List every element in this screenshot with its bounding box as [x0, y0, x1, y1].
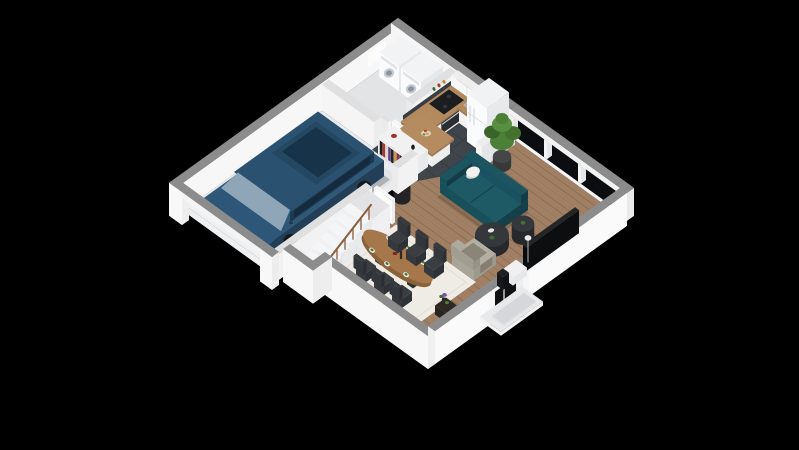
- record-spine: [380, 141, 383, 156]
- table-centerpiece: [393, 252, 398, 255]
- garage-door-leaf-right-face: [392, 198, 395, 224]
- dining-chair-back-right-face: [400, 287, 403, 301]
- fruit-red: [424, 130, 427, 132]
- sideboard-bowl: [391, 134, 397, 138]
- wall-corner-right-right-face: [627, 188, 634, 221]
- fruit-green: [423, 133, 426, 135]
- wall-bottom-mid-right-face: [313, 266, 320, 304]
- wall-garage-hall-a-front-face: [392, 164, 398, 194]
- record-spine: [391, 149, 394, 164]
- cooktop-burner-2: [443, 105, 448, 109]
- coffee-table-plant: [489, 235, 494, 239]
- car-mirror: [289, 222, 293, 225]
- wall-garage-front-right-right-face: [272, 252, 279, 290]
- cooktop-burner-1: [447, 95, 452, 99]
- floor-plan-stage: [0, 0, 799, 450]
- plant-foliage: [496, 113, 509, 124]
- window-post-3-front-face: [578, 164, 581, 184]
- fruit-yellow: [426, 133, 429, 135]
- isometric-floor-plan-render: [0, 0, 799, 450]
- sideboard-vase: [411, 145, 415, 150]
- plant-pot-top: [493, 150, 511, 163]
- dining-chair-back-right-face: [426, 236, 429, 250]
- dining-chair-back-right-face: [408, 223, 411, 237]
- dining-chair-back-right-face: [364, 261, 367, 275]
- record-spine: [388, 147, 391, 162]
- record-spine: [383, 143, 386, 158]
- console-plant: [445, 301, 449, 304]
- record-spine: [385, 145, 388, 160]
- window-post-2-front-face: [544, 139, 547, 159]
- dining-chair-back-right-face: [444, 249, 447, 263]
- floor-lamp-shade: [525, 235, 532, 241]
- coffee-table-small-plant: [521, 221, 526, 225]
- dining-chair-back-right-face: [382, 274, 385, 288]
- flower-bloom: [442, 293, 447, 297]
- wall-right-lower-front-face: [428, 326, 435, 364]
